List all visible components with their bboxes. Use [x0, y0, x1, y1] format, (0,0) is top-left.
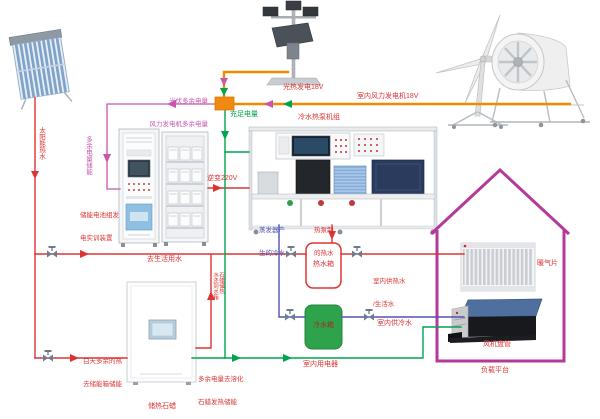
chilled-water-label: 蒸发器产 生的冷水	[259, 212, 285, 265]
domestic-water-label: 去生活用水	[147, 256, 182, 264]
melt-paraffin-label: 多余电量去溶化 石蜡发热储能	[198, 361, 244, 414]
pv-generation-label: 光热发电18V	[283, 84, 323, 92]
surplus-power-line1: 光伏多余电量	[118, 98, 208, 106]
indoor-cold-supply-label: 室内供冷水	[377, 320, 412, 328]
storage-cabinet-line1: 储能电池组发	[80, 212, 119, 220]
pcm-device-label: 储热石蜡 相变装置	[143, 387, 181, 419]
pcm-device-line1: 储热石蜡	[143, 403, 181, 411]
valve-icon	[43, 351, 53, 362]
fan-coil-label: 风机盘管	[483, 341, 511, 349]
arrow-down-icon	[103, 154, 111, 163]
solar-collector	[9, 29, 72, 109]
cold-tank-label: 冷水箱	[305, 322, 342, 330]
storage-cabinet-line2: 电实训装置	[80, 235, 119, 243]
daytime-heat-label: 白天多余的热 去储能箱储能	[83, 343, 122, 396]
valve-icon	[47, 247, 57, 258]
heatpump-hot-water-label: 热泵制 的热水	[314, 212, 334, 265]
solar-hot-water-label: 太阳能热水	[37, 127, 45, 169]
fan-coil-unit	[448, 299, 542, 343]
tracker-panel-icon	[263, 1, 318, 47]
arrow-down-icon	[221, 131, 229, 140]
test-fan	[490, 33, 590, 127]
valve-icon	[285, 310, 295, 321]
arrow-right-icon	[80, 250, 89, 258]
arrow-left-icon	[283, 100, 292, 108]
chilled-water-line1: 蒸发器产	[259, 227, 285, 235]
heat-pump-title: 冷水热泵机组	[298, 114, 340, 122]
heatpump-hot-line2: 的热水	[314, 250, 334, 258]
storage-cabinet-label: 储能电池组发 电实训装置	[80, 197, 119, 250]
sufficient-power-label: 充足电量	[230, 111, 258, 119]
load-platform-label: 负载平台	[481, 367, 509, 375]
surplus-power-label: 光伏多余电量 风力发电机多余电量	[118, 83, 208, 136]
daytime-heat-line2: 去储能箱储能	[83, 381, 122, 389]
control-cabinet	[119, 129, 159, 247]
arrow-right-icon	[70, 354, 79, 362]
surplus-power-line2: 风力发电机多余电量	[118, 121, 208, 129]
charge-controller-box	[215, 97, 234, 110]
surplus-storage-label: 多余电量储能	[84, 136, 92, 158]
daytime-heat-line1: 白天多余的热	[83, 358, 122, 366]
arrow-down-icon	[220, 78, 228, 86]
inverter-label: 逆变220V	[207, 175, 237, 183]
arrow-down-icon	[31, 171, 39, 179]
pipe-pcm-return	[196, 254, 211, 348]
battery-rack-cabinet	[162, 132, 208, 246]
arrow-right-icon	[283, 354, 292, 362]
heatpump-hot-line1: 热泵制	[314, 227, 334, 235]
paraffin-return-col-left: 水还到水箱	[211, 272, 219, 306]
valve-icon	[352, 247, 362, 258]
indoor-appliances-label: 室内用电器	[303, 361, 338, 369]
radiator-label: 暖气片	[537, 260, 558, 268]
indoor-hot-supply-line2: /生活水	[373, 301, 406, 309]
hot-tank-label: 热水箱	[306, 261, 341, 269]
indoor-hot-supply-label: 室内供热水 /生活水	[373, 263, 406, 316]
pcm-storage-cabinet	[127, 282, 196, 385]
indoor-hot-supply-line1: 室内供热水	[373, 278, 406, 286]
radiator	[461, 243, 535, 291]
melt-paraffin-line2: 石蜡发热储能	[198, 399, 244, 407]
melt-paraffin-line1: 多余电量去溶化	[198, 376, 244, 384]
valve-icon	[286, 247, 296, 258]
wind-generation-label: 室内风力发电机18V	[357, 93, 418, 101]
arrow-left-icon	[264, 100, 273, 108]
arrow-right-icon	[213, 184, 222, 192]
arrow-down-icon	[220, 88, 228, 96]
chilled-water-line2: 生的冷水	[259, 250, 285, 258]
system-diagram: 光伏多余电量 风力发电机多余电量 光热发电18V 室内风力发电机18V 充足电量…	[0, 0, 600, 419]
